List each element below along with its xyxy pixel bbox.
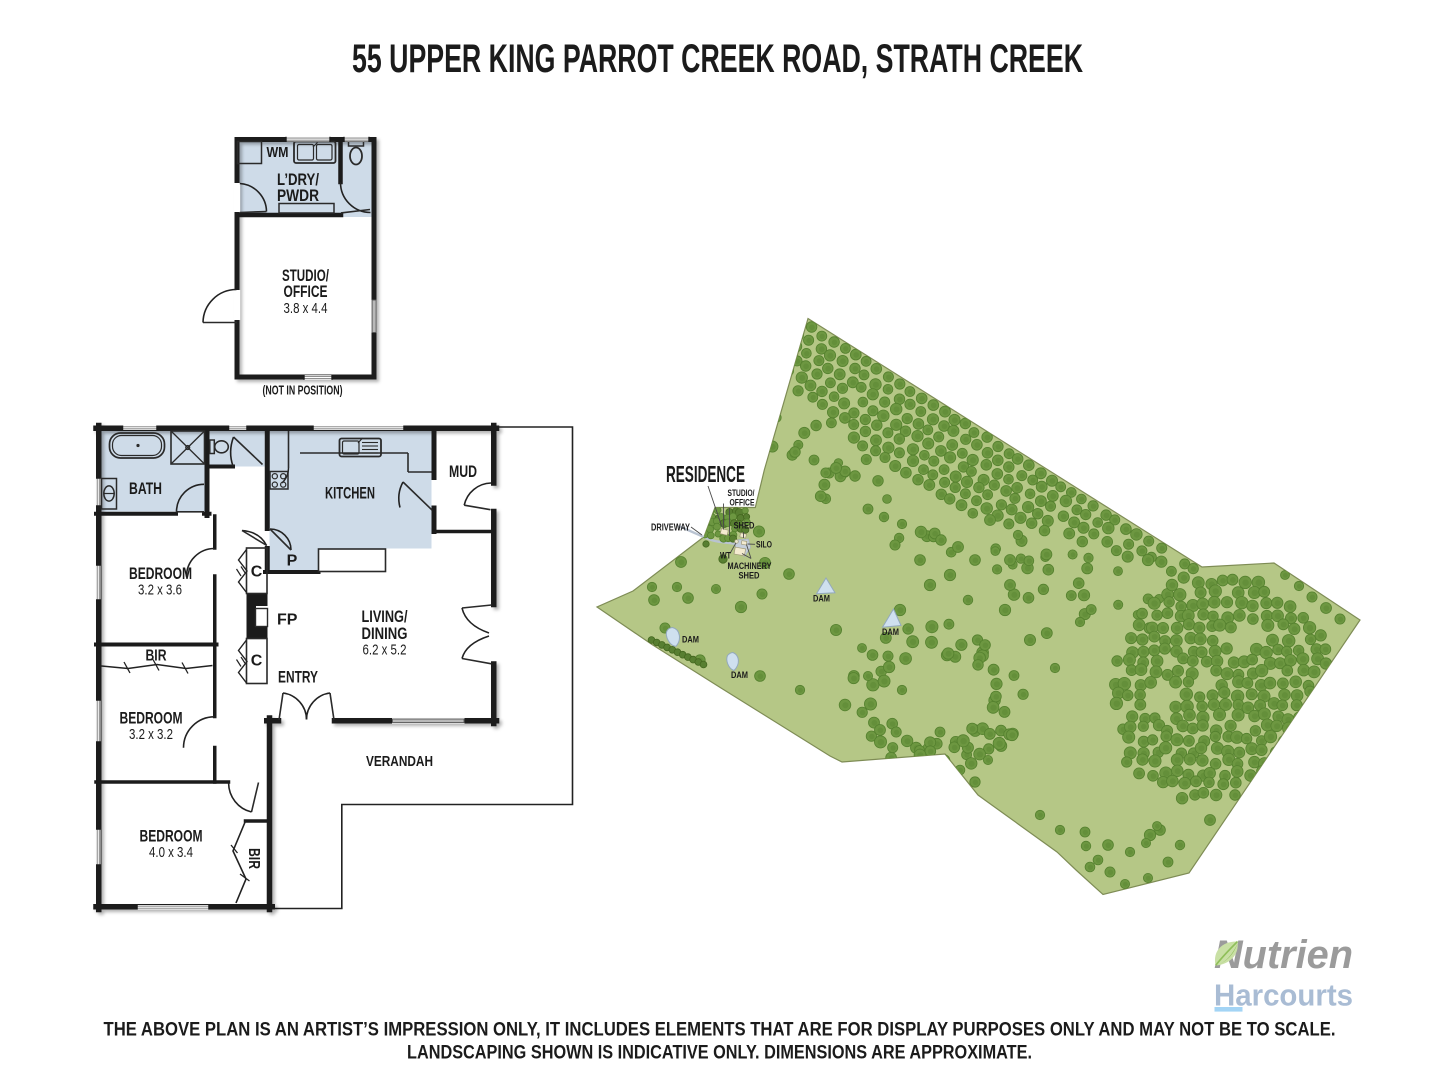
svg-text:DAM: DAM [731,670,748,681]
svg-text:DAM: DAM [882,627,899,638]
svg-text:SILO: SILO [756,540,772,551]
svg-text:VERANDAH: VERANDAH [366,753,433,770]
svg-text:RESIDENCE: RESIDENCE [666,461,745,487]
svg-text:C: C [251,653,263,670]
svg-text:BEDROOM: BEDROOM [120,709,183,728]
svg-text:BATH: BATH [129,479,162,498]
svg-text:BEDROOM: BEDROOM [140,827,203,846]
svg-text:6.2 x 5.2: 6.2 x 5.2 [363,642,407,659]
svg-text:WT: WT [720,551,731,562]
svg-text:DAM: DAM [682,635,699,646]
svg-text:DAM: DAM [813,594,830,605]
svg-text:BIR: BIR [146,648,167,665]
svg-text:WM: WM [267,144,289,161]
svg-text:(NOT IN POSITION): (NOT IN POSITION) [263,384,343,398]
svg-text:3.8 x 4.4: 3.8 x 4.4 [284,300,328,317]
svg-text:DINING: DINING [362,624,408,643]
svg-text:BIR: BIR [245,848,262,869]
svg-text:DRIVEWAY: DRIVEWAY [651,523,690,534]
svg-text:4.0 x 3.4: 4.0 x 3.4 [149,844,193,861]
svg-text:LANDSCAPING SHOWN IS INDICATIV: LANDSCAPING SHOWN IS INDICATIVE ONLY. DI… [407,1043,1032,1064]
svg-text:MUD: MUD [449,462,477,481]
svg-text:OFFICE: OFFICE [284,282,328,301]
svg-text:3.2 x 3.2: 3.2 x 3.2 [129,726,173,743]
svg-text:C: C [251,564,263,581]
svg-text:55 UPPER KING PARROT CREEK ROA: 55 UPPER KING PARROT CREEK ROAD, STRATH … [352,37,1083,81]
svg-text:ENTRY: ENTRY [278,668,318,687]
svg-text:SHED: SHED [739,571,760,582]
svg-text:P: P [287,553,298,570]
svg-text:BEDROOM: BEDROOM [129,564,192,583]
svg-text:PWDR: PWDR [277,187,319,205]
svg-text:SHED: SHED [734,521,755,532]
svg-text:KITCHEN: KITCHEN [325,484,375,503]
svg-text:OFFICE: OFFICE [730,498,755,509]
svg-text:3.2 x 3.6: 3.2 x 3.6 [138,582,182,599]
svg-text:THE ABOVE PLAN IS AN ARTIST’S: THE ABOVE PLAN IS AN ARTIST’S IMPRESSION… [104,1020,1336,1041]
svg-text:FP: FP [277,612,298,629]
